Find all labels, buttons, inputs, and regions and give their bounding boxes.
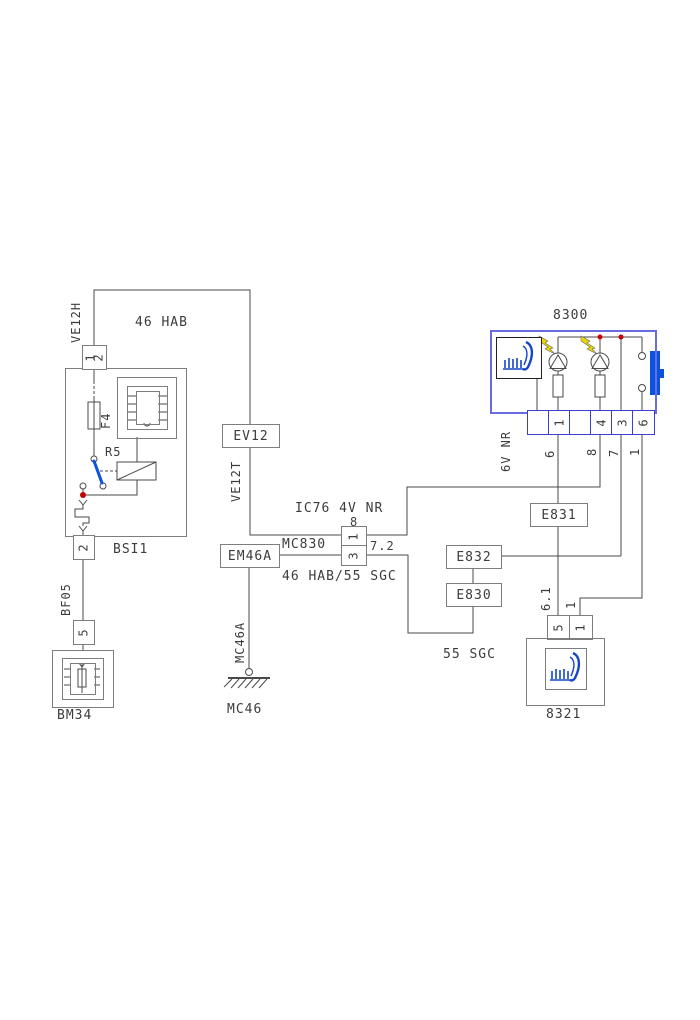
harness-label-46hab55sgc: 46 HAB/55 SGC <box>282 570 397 584</box>
seat-icon-svg <box>497 338 541 378</box>
m8300-conn-pin-a <box>527 410 550 435</box>
bsi1-pin-2: 2 <box>73 535 95 560</box>
mc830-pin-1: 1 <box>341 526 367 547</box>
m8300-conn-pin-b <box>569 410 592 435</box>
bsi1-module-ic <box>136 391 160 425</box>
ground-hatch <box>224 679 267 688</box>
wire-6-label: 6 <box>544 450 557 458</box>
ground-terminal <box>246 669 253 676</box>
fuse-f4-label: F4 <box>100 413 113 429</box>
bm34-pin-5: 5 <box>73 620 95 645</box>
wire-mc46a-label: MC46A <box>234 622 247 663</box>
harness-label-ic76: IC76 4V NR <box>295 502 383 516</box>
harness-label-46hab: 46 HAB <box>135 316 188 330</box>
function-label-55sgc: 55 SGC <box>443 648 496 662</box>
heated-seat-icon-8321 <box>545 648 587 690</box>
m8300-conn-pin-6: 6 <box>632 410 655 435</box>
connector-ev12: EV12 <box>222 424 280 448</box>
mc830-label: MC830 <box>282 538 326 552</box>
wire-61-label: 6.1 <box>540 586 553 611</box>
wire-ve12t <box>250 446 341 535</box>
mc830-pin-3: 3 <box>341 545 367 566</box>
wire-1b-label: 1 <box>565 601 578 609</box>
ground-label-mc46: MC46 <box>227 703 262 717</box>
m8300-conn-pin-1: 1 <box>548 410 571 435</box>
wire-8v-label: 8 <box>586 448 599 456</box>
relay-label: R5 <box>105 445 121 459</box>
bsi1-label: BSI1 <box>113 543 148 557</box>
splice-e830: E830 <box>446 583 502 607</box>
wire-1 <box>580 433 642 615</box>
bm34-label: BM34 <box>57 709 92 723</box>
bsi1-pin-12: 12 <box>82 345 107 370</box>
seat-backrest-inner <box>523 346 527 365</box>
wiring-diagram: 12 2 5 EV12 EM46A 1 3 E831 E832 E830 1 4… <box>0 0 700 1020</box>
m8321-pin-5: 5 <box>547 615 571 640</box>
seat-heater-coils <box>505 358 521 368</box>
m8300-conn-pin-4: 4 <box>590 410 613 435</box>
connector-em46a: EM46A <box>220 544 280 568</box>
wire-7 <box>500 433 621 556</box>
splice-e831: E831 <box>530 503 588 527</box>
seat-icon-svg <box>546 649 586 689</box>
connector-6vnr-label: 6V NR <box>500 431 513 472</box>
m8321-pin-1: 1 <box>569 615 593 640</box>
wire-ve12t-label: VE12T <box>230 461 243 502</box>
seat-backrest-inner <box>570 657 574 676</box>
switch-actuator-notch <box>660 369 664 378</box>
bm34-ic-box <box>70 663 96 695</box>
splice-e832: E832 <box>446 545 502 569</box>
m8300-label: 8300 <box>553 309 588 323</box>
wire-8-label: 8 <box>350 515 358 529</box>
heated-seat-icon-8300 <box>496 337 542 379</box>
seat-heater-coils <box>552 669 568 679</box>
wire-ve12h-label: VE12H <box>70 302 83 343</box>
wire-72-label: 7.2 <box>370 539 395 553</box>
wire-1-label: 1 <box>629 448 642 456</box>
wire-bf05-label: BF05 <box>60 583 73 616</box>
m8321-label: 8321 <box>546 708 581 722</box>
wire-7-label: 7 <box>608 449 621 457</box>
m8300-conn-pin-3: 3 <box>611 410 634 435</box>
